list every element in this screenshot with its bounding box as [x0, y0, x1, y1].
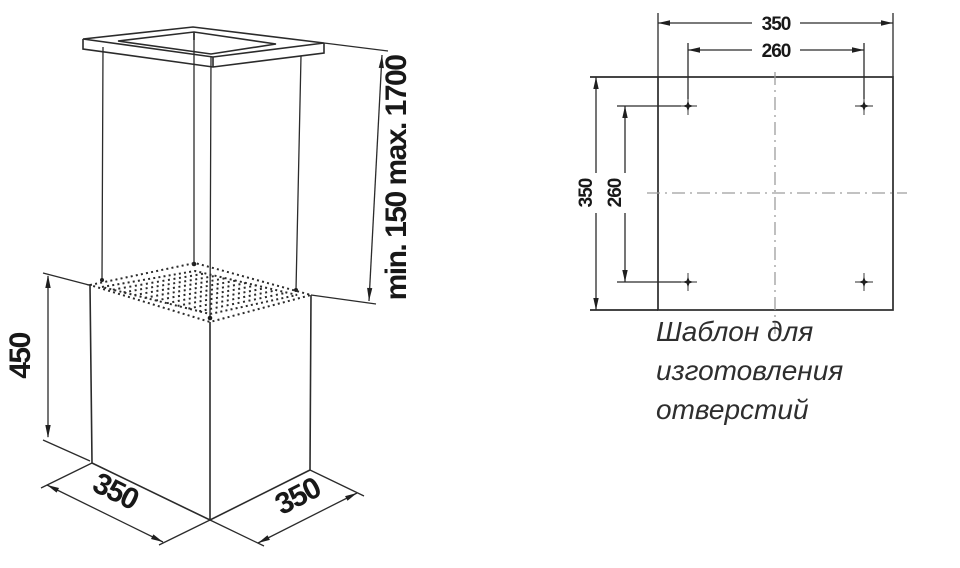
frame-inner-opening	[118, 32, 276, 54]
template-centerlines	[647, 72, 907, 334]
arrowhead-down	[622, 270, 627, 282]
dim-label-template-height: 350	[576, 178, 597, 207]
hood-grille	[90, 263, 311, 322]
frame-thickness-edges	[83, 32, 324, 67]
suspension-rods	[100, 33, 301, 320]
grille-hatch-lines	[113, 273, 287, 311]
dim-label-height: 450	[4, 332, 37, 378]
drill-hole-marker	[855, 97, 873, 115]
dim-hole-spacing-horizontal: 260	[688, 41, 864, 99]
rod-anchor-dot	[208, 316, 213, 321]
ceiling-mount-frame	[83, 27, 324, 67]
arrowhead-up	[622, 106, 627, 118]
grille-inner-border	[102, 271, 297, 314]
extension-lines	[311, 43, 388, 304]
dim-hole-spacing-vertical: 260	[605, 106, 628, 282]
extension-lines	[43, 273, 90, 461]
drill-hole-marker	[679, 273, 697, 291]
dim-label-depth: 350	[270, 471, 326, 521]
dim-label-suspension-range: min. 150 max. 1700	[380, 55, 413, 301]
arrowhead-up	[593, 77, 598, 89]
dim-suspension-range: min. 150 max. 1700	[311, 43, 413, 304]
arrowhead-right	[345, 493, 357, 501]
dim-label-hole-spacing-horizontal: 260	[762, 41, 791, 62]
arrowhead-up	[45, 275, 50, 288]
dim-body-width: 350	[41, 463, 210, 545]
dim-template-height: 350	[576, 77, 599, 310]
arrowhead-down	[593, 298, 598, 310]
arrowhead-left	[658, 20, 670, 25]
template-caption: Шаблон для изготовления отверстий	[656, 312, 916, 429]
dim-label-template-width: 350	[762, 14, 791, 35]
caption-line-2: изготовления	[656, 351, 916, 390]
arrowhead-right	[881, 20, 893, 25]
hood-isometric-drawing: 450 350 350 min. 150 max. 1700	[0, 0, 480, 568]
arrowhead-left	[47, 485, 59, 493]
drill-hole-marker	[855, 273, 873, 291]
dim-body-height: 450	[4, 273, 90, 461]
dim-label-hole-spacing-vertical: 260	[605, 178, 626, 207]
arrowhead-right	[151, 534, 163, 542]
installation-diagram-page: 450 350 350 min. 150 max. 1700	[0, 0, 960, 568]
arrowhead-down	[45, 425, 50, 438]
arrowhead-left	[258, 535, 270, 543]
hole-row-extension-lines	[617, 106, 681, 282]
caption-line-1: Шаблон для	[656, 312, 916, 351]
arrowhead-left	[688, 47, 700, 52]
caption-line-3: отверстий	[656, 390, 916, 429]
rod-anchor-dot	[100, 278, 104, 282]
drill-hole-marker	[679, 97, 697, 115]
drill-template-drawing: 350 260 350 260	[480, 0, 960, 568]
drill-holes	[679, 97, 873, 291]
arrowhead-right	[852, 47, 864, 52]
